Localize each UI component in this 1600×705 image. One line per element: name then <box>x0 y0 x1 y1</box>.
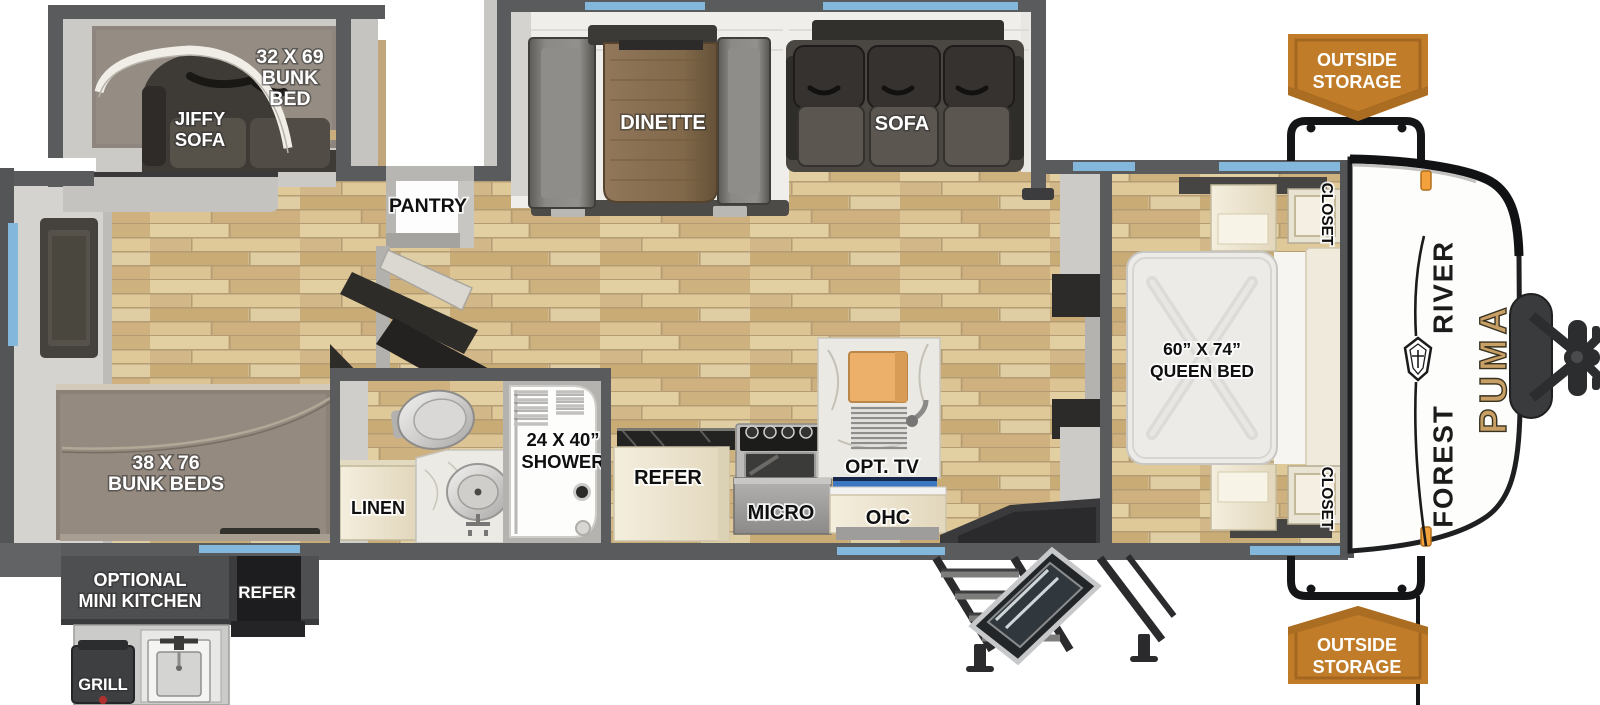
svg-text:LINEN: LINEN <box>351 498 405 518</box>
svg-text:OPTIONAL: OPTIONAL <box>94 570 187 590</box>
svg-text:QUEEN BED: QUEEN BED <box>1150 361 1254 381</box>
svg-text:CLOSET: CLOSET <box>1318 183 1335 246</box>
svg-text:OUTSIDE: OUTSIDE <box>1317 50 1397 70</box>
svg-text:REFER: REFER <box>238 583 296 602</box>
svg-text:32 X 69: 32 X 69 <box>256 46 323 68</box>
svg-text:OUTSIDE: OUTSIDE <box>1317 635 1397 655</box>
svg-text:OPT. TV: OPT. TV <box>845 456 919 478</box>
svg-text:PUMA: PUMA <box>1473 302 1515 434</box>
svg-text:STORAGE: STORAGE <box>1313 72 1402 92</box>
svg-text:OHC: OHC <box>866 507 910 529</box>
svg-text:GRILL: GRILL <box>78 676 128 694</box>
svg-text:DINETTE: DINETTE <box>620 112 706 134</box>
svg-text:38 X 76: 38 X 76 <box>132 452 199 474</box>
svg-text:REFER: REFER <box>634 467 702 489</box>
svg-text:FOREST: FOREST <box>1427 404 1458 528</box>
svg-text:BUNK BEDS: BUNK BEDS <box>108 473 224 495</box>
svg-text:CLOSET: CLOSET <box>1318 467 1335 530</box>
svg-text:SHOWER: SHOWER <box>521 451 604 472</box>
svg-text:24 X 40”: 24 X 40” <box>526 429 599 450</box>
svg-text:MINI KITCHEN: MINI KITCHEN <box>79 591 202 611</box>
svg-text:MICRO: MICRO <box>748 502 815 524</box>
svg-text:60” X 74”: 60” X 74” <box>1163 339 1241 359</box>
svg-text:JIFFY: JIFFY <box>175 108 226 129</box>
svg-text:SOFA: SOFA <box>875 113 929 135</box>
svg-text:BUNK: BUNK <box>262 67 318 89</box>
svg-text:BED: BED <box>269 88 310 110</box>
svg-text:STORAGE: STORAGE <box>1313 657 1402 677</box>
svg-text:RIVER: RIVER <box>1427 240 1458 334</box>
svg-text:SOFA: SOFA <box>175 129 225 150</box>
svg-text:PANTRY: PANTRY <box>389 195 467 217</box>
